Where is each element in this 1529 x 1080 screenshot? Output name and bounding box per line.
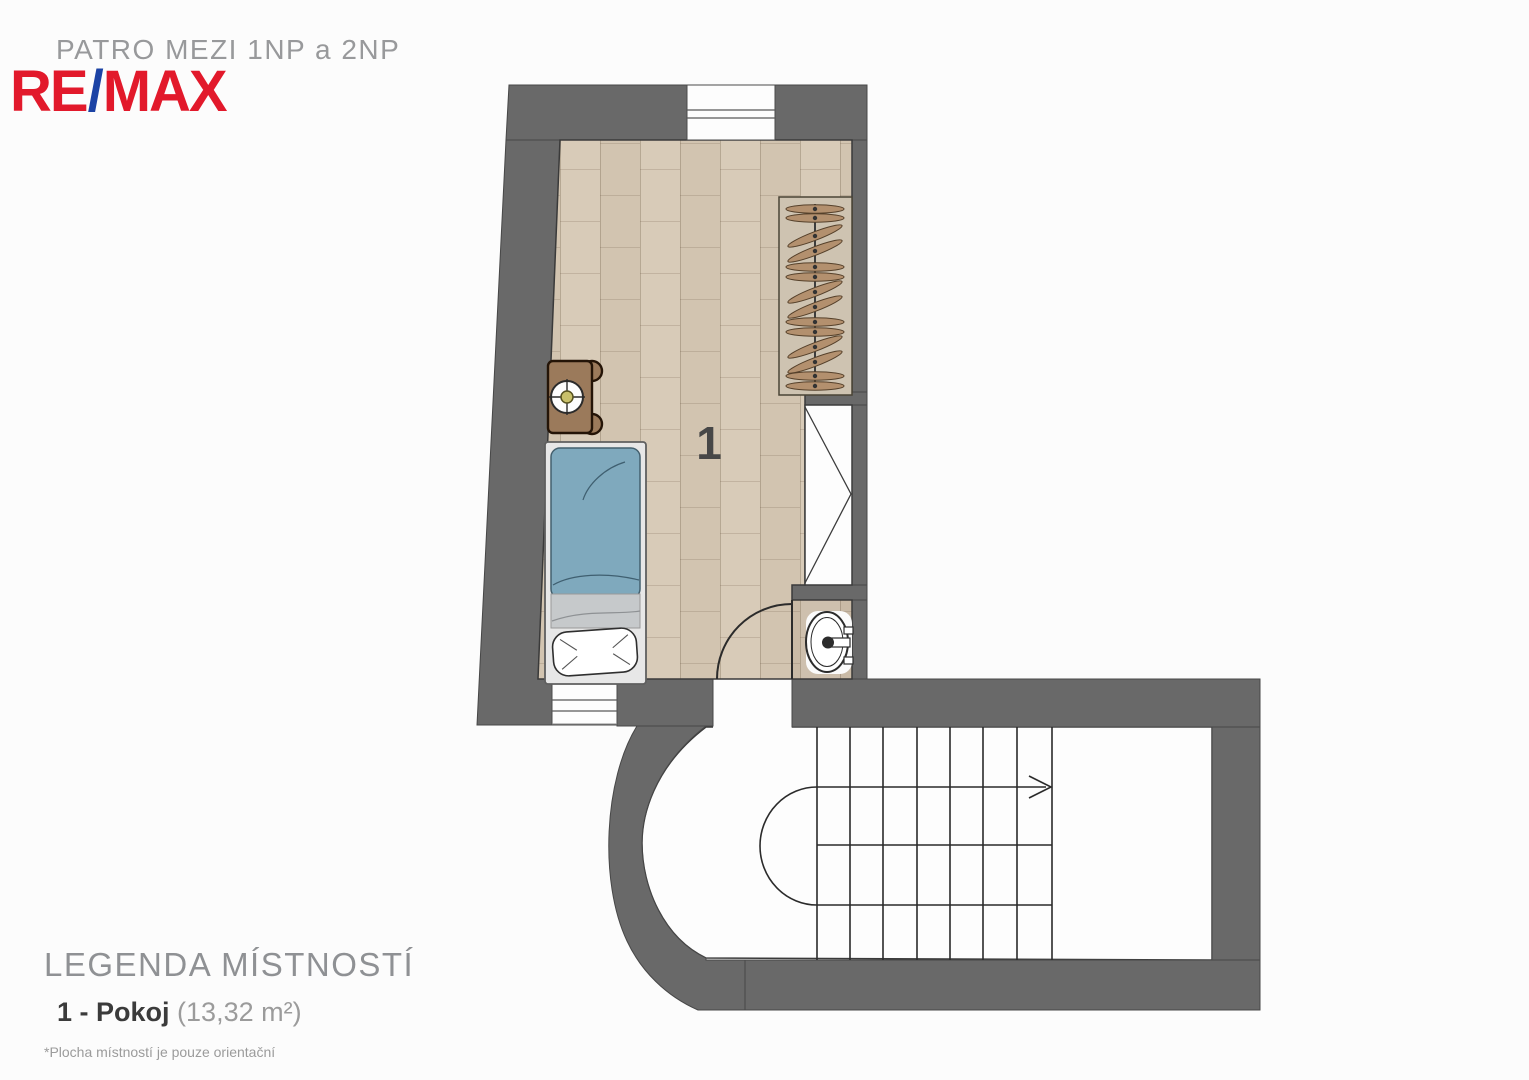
wall-stair-top [792, 679, 1260, 727]
closet-icon [805, 405, 852, 585]
hanger-icon [786, 382, 844, 390]
wall-top-left [506, 85, 687, 140]
doorway-gap [713, 679, 792, 728]
logo-max: MAX [103, 59, 226, 124]
wall-right-upper [852, 140, 867, 392]
hanger-icon [786, 318, 844, 326]
wardrobe-rack-icon [779, 197, 852, 395]
hanger-icon [786, 328, 844, 336]
remax-logo: RE/MAX [10, 58, 226, 125]
legend-room-area: (13,32 m²) [177, 997, 302, 1027]
wall-top-right [775, 85, 867, 140]
hanger-icon [786, 214, 844, 222]
logo-re: RE [10, 59, 87, 124]
logo-slash-icon: / [87, 58, 103, 125]
bed-icon [545, 442, 646, 684]
hanger-icon [786, 263, 844, 271]
wall-sink-top [792, 585, 867, 600]
stairwell-floor [642, 727, 1212, 960]
pillow-icon [552, 627, 639, 677]
hanger-icon [786, 205, 844, 213]
page: PATRO MEZI 1NP a 2NP RE/MAX [0, 0, 1529, 1080]
legend-footnote: *Plocha místností je pouze orientační [44, 1044, 275, 1060]
legend-room-label: 1 - Pokoj [57, 997, 170, 1027]
legend-item: 1 - Pokoj (13,32 m²) [57, 997, 302, 1028]
hanger-icon [786, 273, 844, 281]
window-bottom-icon [552, 679, 617, 725]
room-number-label: 1 [696, 417, 722, 469]
legend-title: LEGENDA MÍSTNOSTÍ [44, 946, 414, 984]
sink-icon [806, 611, 853, 674]
wall-sink-right [852, 600, 867, 679]
floor-plan: 1 [440, 60, 1300, 1040]
hanger-icon [786, 372, 844, 380]
wall-closet-right [852, 405, 867, 585]
window-top-icon [687, 85, 775, 140]
wall-bottom-mid [617, 679, 713, 726]
wall-stair-bottom [700, 960, 1260, 1010]
